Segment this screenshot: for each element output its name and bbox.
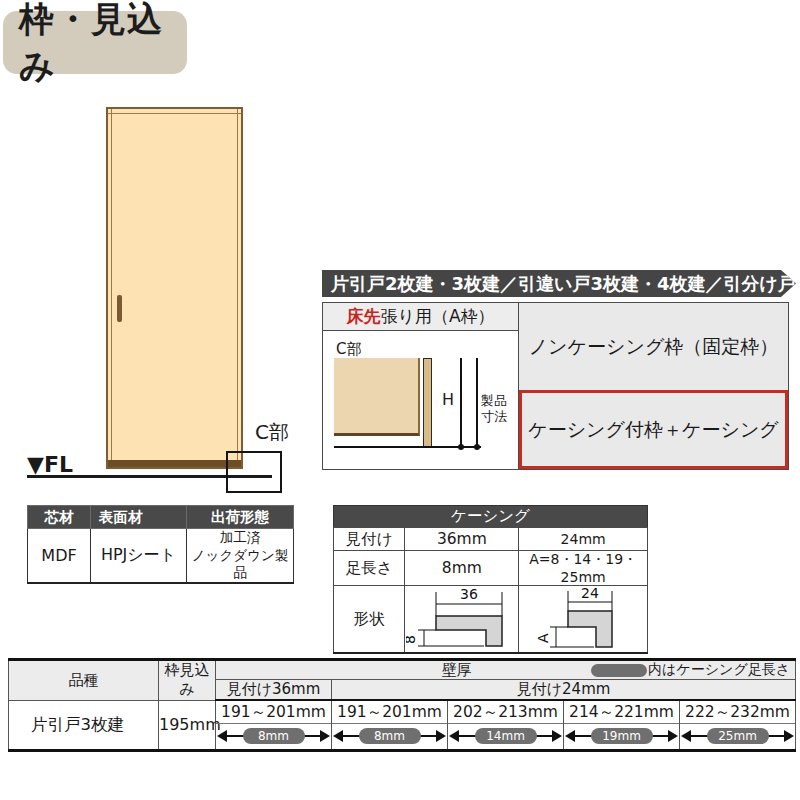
spec-cell-1: 191～201mm 8mm	[216, 700, 332, 751]
spec-header-wall: 壁厚 内はケーシング足長さ	[216, 660, 796, 680]
wall-range: 191～201mm	[332, 701, 447, 724]
option-noncasing-frame[interactable]: ノンケーシング枠（固定枠）	[519, 303, 788, 390]
leg-pill: 14mm	[475, 728, 537, 744]
casing-row-shape-label: 形状	[334, 586, 405, 654]
svg-text:36: 36	[460, 586, 478, 602]
door-illustration	[106, 107, 243, 469]
svg-text:8: 8	[406, 635, 418, 644]
wall-range: 191～201mm	[216, 701, 331, 724]
spec-cell-5: 222～232mm 25mm	[680, 700, 796, 751]
dimension-line-product	[476, 358, 478, 447]
material-core-value: MDF	[28, 529, 91, 583]
leg-arrow: 8mm	[332, 724, 447, 749]
casing-row-mitsuke-label: 見付け	[334, 528, 405, 551]
spec-depth-value: 195mm	[159, 700, 216, 751]
spec-row: 片引戸3枚建 195mm 191～201mm 8mm 191～201mm	[9, 700, 796, 751]
leg-pill: 8mm	[359, 728, 421, 744]
wall-note: 内はケーシング足長さ	[591, 661, 790, 679]
pill-legend-icon	[591, 664, 647, 677]
dimension-line-h	[460, 358, 462, 447]
door-right-stile-line	[237, 109, 238, 467]
arrow-right-icon	[320, 730, 330, 742]
casing-profile-36-icon: 36 8	[406, 586, 518, 648]
arrow-right-icon	[668, 730, 678, 742]
diagram-frame-strip	[423, 358, 432, 448]
casing-leg-36: 8mm	[405, 551, 519, 586]
dimension-label-h: H	[442, 390, 454, 409]
wall-range: 202～213mm	[448, 701, 563, 724]
spec-header-mitsuke24: 見付け24mm	[332, 680, 796, 701]
door-types-header-bar: 片引戸2枚建・3枚建／引違い戸3枚建・4枚建／引分け戸	[322, 270, 796, 297]
spec-header-type: 品種	[9, 660, 159, 701]
floor-level-label: ▼FL	[27, 452, 73, 477]
diagram-c-part-label: C部	[336, 340, 361, 359]
leg-pill: 19mm	[591, 728, 653, 744]
floor-type-rest: 張り用（A枠）	[380, 305, 494, 328]
leg-pill: 8mm	[243, 728, 305, 744]
arrow-right-icon	[784, 730, 794, 742]
diagram-door-section	[334, 358, 420, 436]
spec-type-value: 片引戸3枚建	[9, 700, 159, 751]
option-casing-frame-selected[interactable]: ケーシング付枠＋ケーシング	[519, 390, 788, 469]
page-title: 枠・見込み	[3, 11, 187, 74]
arrow-right-icon	[436, 730, 446, 742]
dimension-label-product: 製品 寸法	[481, 393, 507, 426]
door-handle	[117, 295, 122, 322]
wall-range: 222～232mm	[680, 701, 795, 724]
floor-type-header: 床先 張り用（A枠）	[323, 303, 519, 331]
floor-type-red: 床先	[346, 305, 380, 328]
leg-arrow: 14mm	[448, 724, 563, 749]
leg-pill: 25mm	[707, 728, 769, 744]
casing-profile-24-icon: 24 A	[533, 587, 633, 649]
casing-mitsuke-36: 36mm	[405, 528, 519, 551]
door-left-stile-line	[111, 109, 112, 467]
door-bottom-rail	[108, 460, 241, 467]
leg-arrow: 8mm	[216, 724, 331, 749]
arrow-right-icon	[552, 730, 562, 742]
leg-arrow: 19mm	[564, 724, 679, 749]
dimension-dot	[474, 444, 480, 450]
material-header-surface: 表面材	[91, 506, 187, 529]
spec-cell-2: 191～201mm 8mm	[332, 700, 448, 751]
wall-thickness-spec-table: 品種 枠見込み 壁厚 内はケーシング足長さ 見付け36mm 見付け24mm 片引…	[8, 658, 796, 752]
door-top-rail-line	[108, 113, 241, 114]
casing-leg-24: A=8・14・19・25mm	[519, 551, 648, 586]
casing-table: ケーシング 見付け 36mm 24mm 足長さ 8mm A=8・14・19・25…	[333, 505, 648, 654]
material-row: MDF HPJシート 加工済 ノックダウン製品	[28, 529, 294, 583]
spec-cell-4: 214～221mm 19mm	[564, 700, 680, 751]
casing-shape-36-cell: 36 8	[405, 586, 519, 654]
material-surface-value: HPJシート	[91, 529, 187, 583]
svg-text:A: A	[535, 633, 551, 643]
spec-cell-3: 202～213mm 14mm	[448, 700, 564, 751]
spec-header-depth: 枠見込み	[159, 660, 216, 701]
material-table: 芯材 表面材 出荷形態 MDF HPJシート 加工済 ノックダウン製品	[27, 505, 294, 584]
svg-text:24: 24	[581, 587, 599, 601]
dimension-dot	[458, 444, 464, 450]
casing-row-leg-label: 足長さ	[334, 551, 405, 586]
c-part-label: C部	[255, 419, 289, 446]
c-part-diagram: C部 H 製品 寸法	[323, 331, 519, 469]
casing-mitsuke-24: 24mm	[519, 528, 648, 551]
casing-table-title: ケーシング	[333, 505, 648, 527]
material-header-ship: 出荷形態	[187, 506, 294, 529]
spec-sheet-page: 枠・見込み ▼FL C部 芯材 表面材 出荷形態 MDF HPJシート 加工済 …	[0, 0, 800, 800]
frame-type-panel: 床先 張り用（A枠） C部 H 製品 寸法 ノンケーシング枠（固定枠） ケーシン…	[322, 302, 789, 470]
c-part-detail-box	[226, 451, 282, 493]
casing-shape-24-cell: 24 A	[519, 586, 648, 654]
wall-range: 214～221mm	[564, 701, 679, 724]
spec-header-mitsuke36: 見付け36mm	[216, 680, 332, 701]
material-header-core: 芯材	[28, 506, 91, 529]
material-ship-value: 加工済 ノックダウン製品	[187, 529, 294, 583]
leg-arrow: 25mm	[680, 724, 795, 749]
